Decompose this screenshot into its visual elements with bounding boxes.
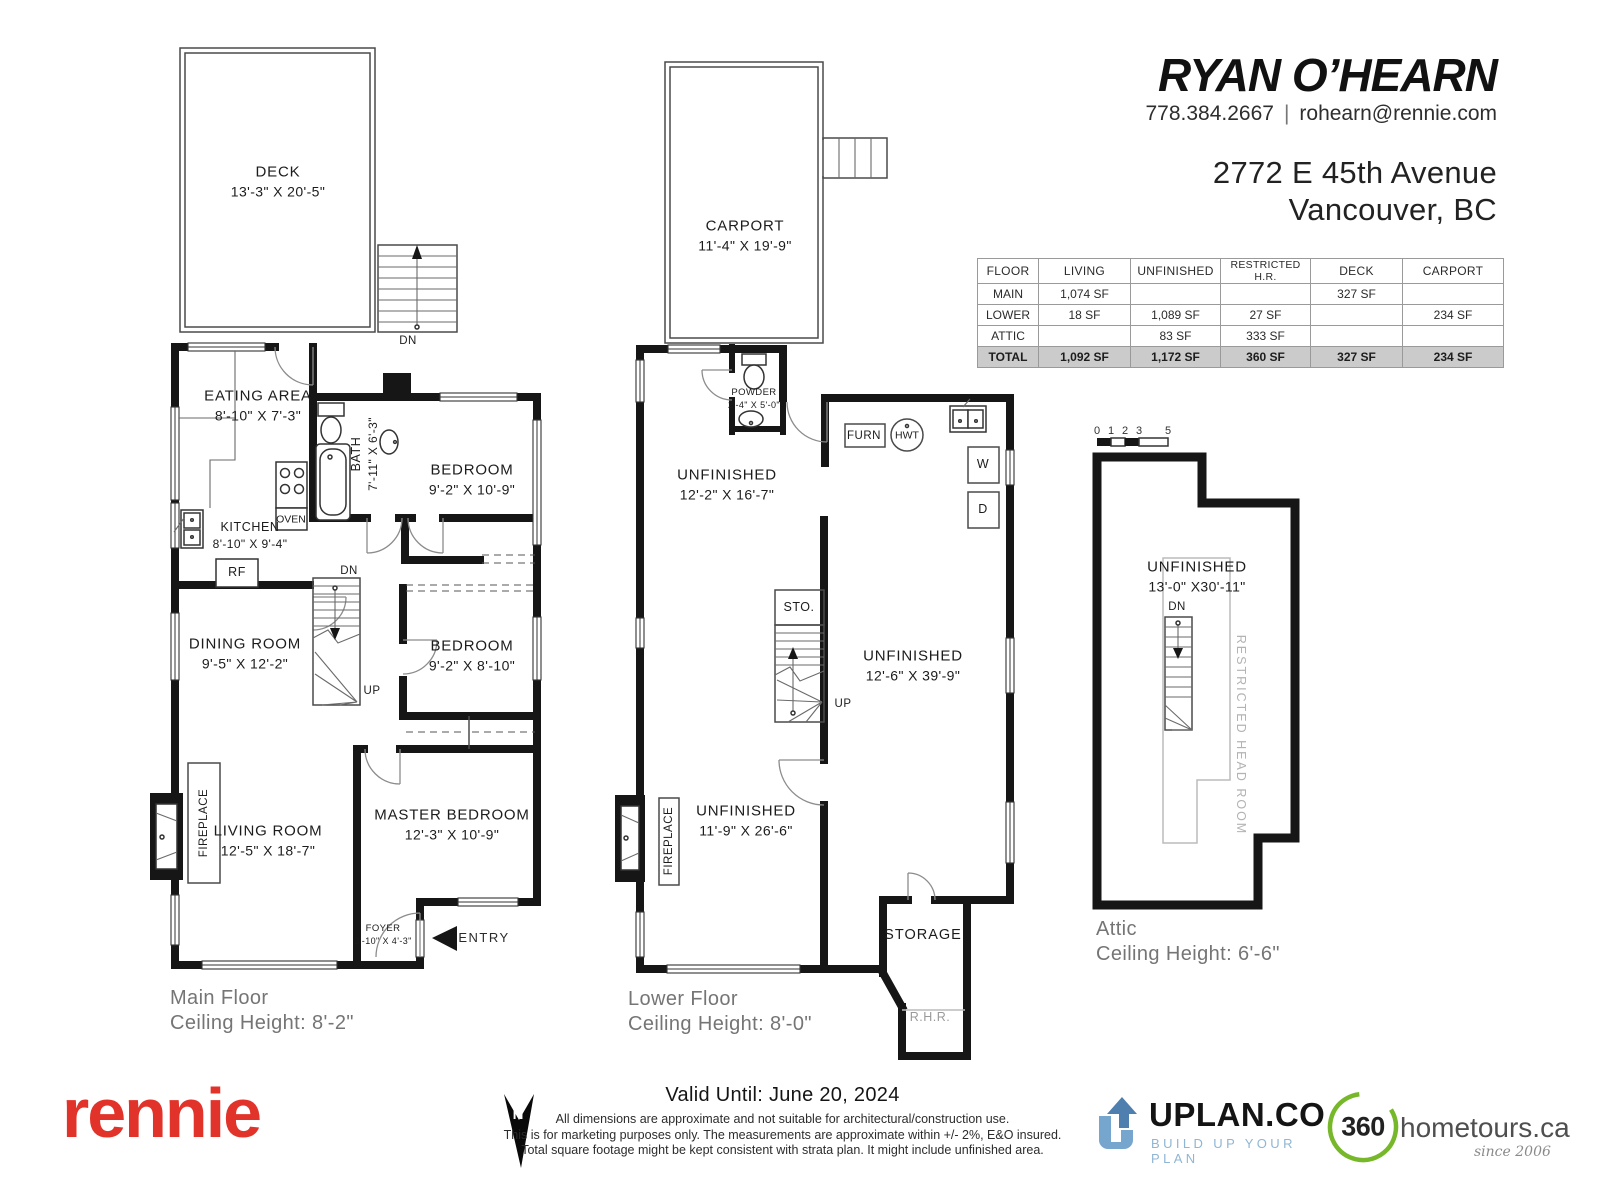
agent-contact: 778.384.2667|rohearn@rennie.com (1145, 102, 1497, 126)
stairs-up-label: UP (835, 697, 852, 711)
main-floor-caption: Main Floor Ceiling Height: 8'-2" (170, 986, 354, 1036)
foyer-label: FOYER3'-10" X 4'-3" (354, 923, 411, 947)
table-row-attic: ATTIC83 SF333 SF (978, 326, 1504, 347)
bath-sink-icon (380, 430, 398, 454)
deck-stairs-icon (378, 245, 457, 332)
kitchen-counter (179, 351, 235, 508)
agent-phone: 778.384.2667 (1145, 102, 1273, 125)
carport-outline (665, 62, 887, 343)
caption-title: Attic (1096, 917, 1280, 942)
bedroom1-label: BEDROOM9'-2" X 10'-9" (429, 461, 515, 498)
cell: 27 SF (1221, 305, 1311, 326)
toilet-icon (318, 403, 344, 443)
cell (1311, 326, 1403, 347)
uplan-logo: UPLAN.CO BUILD UP YOUR PLAN (1093, 1088, 1323, 1168)
dryer-label: D (978, 502, 988, 518)
table-row-main: MAIN1,074 SF327 SF (978, 284, 1504, 305)
cell: 1,074 SF (1039, 284, 1131, 305)
valid-until: Valid Until: June 20, 2024 (500, 1084, 1065, 1107)
washer-label: W (977, 457, 989, 473)
disclaimer-block: Valid Until: June 20, 2024 All dimension… (500, 1084, 1065, 1159)
lower-floor-plan: CARPORT11'-4" X 19'-9" POWDER2'-4" X 5'-… (600, 55, 1020, 1090)
cell (1311, 305, 1403, 326)
hometours-name: hometours.ca (1400, 1112, 1570, 1144)
scale-5: 5 (1165, 425, 1171, 437)
cell (1131, 284, 1221, 305)
disclaimer-line: This is for marketing purposes only. The… (500, 1128, 1065, 1144)
attic-caption: Attic Ceiling Height: 6'-6" (1096, 917, 1280, 967)
col-carport: CARPORT (1403, 259, 1504, 284)
cell: 83 SF (1131, 326, 1221, 347)
col-deck: DECK (1311, 259, 1403, 284)
cell: 234 SF (1403, 305, 1504, 326)
master-bedroom-label: MASTER BEDROOM12'-3" X 10'-9" (374, 806, 529, 843)
cell: 18 SF (1039, 305, 1131, 326)
restricted-headroom-label: RESTRICTED HEAD ROOM (1232, 635, 1248, 835)
chimney (383, 373, 411, 397)
fireplace-label: FIREPLACE (197, 789, 211, 857)
scale-bar (1097, 438, 1168, 446)
powder-toilet-icon (742, 354, 766, 389)
agent-email: rohearn@rennie.com (1299, 102, 1497, 125)
bathtub-icon (316, 444, 350, 520)
cell: 1,092 SF (1039, 347, 1131, 368)
entry-arrow-icon (432, 926, 457, 951)
lower-floor-caption: Lower Floor Ceiling Height: 8'-0" (628, 987, 812, 1037)
hometours-logo: 360 hometours.ca since 2006 (1326, 1088, 1576, 1174)
bath-label: BATH7'-11" X 6'-3" (349, 417, 381, 491)
scale-2: 2 (1122, 425, 1128, 437)
attic-plan: 0 1 2 3 5 UNFINISHED13'-0" X30'-11" DN R… (1060, 405, 1330, 975)
agent-name: RYAN O’HEARN (1158, 48, 1497, 102)
fridge-label: RF (228, 565, 246, 581)
uplan-name: UPLAN.CO (1149, 1096, 1325, 1134)
hwt-label: HWT (895, 429, 919, 442)
cell: 327 SF (1311, 284, 1403, 305)
cell: 1,172 SF (1131, 347, 1221, 368)
caption-sub: Ceiling Height: 8'-0" (628, 1012, 812, 1037)
address-line2: Vancouver, BC (1213, 191, 1497, 228)
scale-0: 0 (1094, 425, 1100, 437)
cell: 1,089 SF (1131, 305, 1221, 326)
dining-room-label: DINING ROOM9'-5" X 12'-2" (189, 635, 301, 672)
scale-3: 3 (1136, 425, 1142, 437)
address-line1: 2772 E 45th Avenue (1213, 154, 1497, 191)
caption-title: Lower Floor (628, 987, 812, 1012)
cell: 360 SF (1221, 347, 1311, 368)
living-room-label: LIVING ROOM12'-5" X 18'-7" (214, 822, 323, 859)
table-row-lower: LOWER18 SF1,089 SF27 SF234 SF (978, 305, 1504, 326)
carport-label: CARPORT11'-4" X 19'-9" (698, 217, 791, 254)
table-header-row: FLOOR LIVING UNFINISHED RESTRICTED H.R. … (978, 259, 1504, 284)
cell: 234 SF (1403, 347, 1504, 368)
deck-dn-label: DN (399, 334, 417, 348)
attic-unfinished-label: UNFINISHED13'-0" X30'-11" (1147, 558, 1247, 595)
unfinished-right-label: UNFINISHED12'-6" X 39'-9" (863, 647, 963, 684)
caption-title: Main Floor (170, 986, 354, 1011)
col-restricted: RESTRICTED H.R. (1221, 259, 1311, 284)
scale-1: 1 (1108, 425, 1114, 437)
main-floor-drawing (150, 40, 550, 1050)
caption-sub: Ceiling Height: 6'-6" (1096, 942, 1280, 967)
uplan-tagline: BUILD UP YOUR PLAN (1151, 1136, 1323, 1166)
lower-stairs-icon (775, 625, 824, 722)
stairs-up-label: UP (364, 684, 381, 698)
col-unfinished: UNFINISHED (1131, 259, 1221, 284)
fireplace-label: FIREPLACE (662, 807, 676, 875)
cell (1403, 284, 1504, 305)
table-row-total: TOTAL1,092 SF1,172 SF360 SF327 SF234 SF (978, 347, 1504, 368)
cell: 333 SF (1221, 326, 1311, 347)
hometours-since: since 2006 (1474, 1144, 1551, 1160)
entry-label: ENTRY (458, 930, 509, 946)
furnace-label: FURN (847, 429, 881, 443)
powder-sink-icon (739, 411, 763, 427)
cell (1039, 326, 1131, 347)
eating-area-label: EATING AREA8'-10" X 7'-3" (204, 387, 312, 424)
storage-label: STORAGE (884, 926, 962, 944)
stairs-dn-label: DN (340, 564, 358, 578)
col-living: LIVING (1039, 259, 1131, 284)
unfinished-bottom-label: UNFINISHED11'-9" X 26'-6" (696, 802, 796, 839)
attic-drawing (1060, 405, 1330, 975)
uplan-logo-icon (1093, 1092, 1143, 1156)
cell (1221, 284, 1311, 305)
caption-sub: Ceiling Height: 8'-2" (170, 1011, 354, 1036)
deck-label: DECK13'-3" X 20'-5" (231, 163, 325, 200)
oven-label: OVEN (276, 513, 306, 526)
sto-label: STO. (784, 600, 815, 616)
bedroom2-label: BEDROOM9'-2" X 8'-10" (429, 637, 515, 674)
cell: 327 SF (1311, 347, 1403, 368)
powder-label: POWDER2'-4" X 5'-0" (728, 387, 780, 411)
lower-walls (640, 349, 1010, 1056)
rennie-logo: rennie (62, 1078, 260, 1148)
disclaimer-line: Total square footage might be kept consi… (500, 1143, 1065, 1159)
main-floor-plan: DECK13'-3" X 20'-5" DN EATING AREA8'-10"… (150, 40, 550, 1050)
unfinished-left-label: UNFINISHED12'-2" X 16'-7" (677, 466, 777, 503)
hometours-360: 360 (1341, 1112, 1385, 1143)
contact-divider: | (1274, 102, 1299, 125)
area-table: FLOOR LIVING UNFINISHED RESTRICTED H.R. … (977, 258, 1504, 368)
rhr-label: R.H.R. (910, 1010, 951, 1026)
attic-walls (1097, 457, 1295, 905)
cell (1403, 326, 1504, 347)
floorplan-page: RYAN O’HEARN 778.384.2667|rohearn@rennie… (0, 0, 1600, 1200)
stairs-dn-label: DN (1168, 600, 1186, 614)
laundry-sink-icon (950, 399, 986, 432)
property-address: 2772 E 45th Avenue Vancouver, BC (1213, 154, 1497, 228)
disclaimer-line: All dimensions are approximate and not s… (500, 1112, 1065, 1128)
